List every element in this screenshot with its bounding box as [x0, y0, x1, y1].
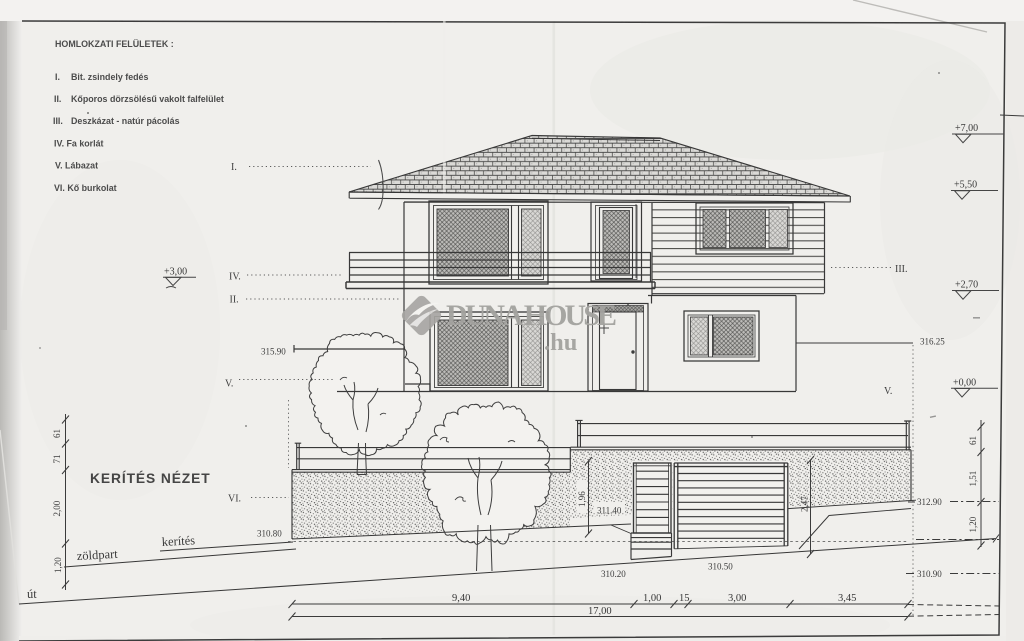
svg-text:312.90: 312.90	[917, 497, 942, 507]
svg-text:.hu: .hu	[544, 329, 577, 356]
svg-text:+3,00: +3,00	[164, 267, 187, 278]
svg-text:310.80: 310.80	[257, 529, 282, 539]
svg-text:1,51: 1,51	[968, 471, 978, 487]
svg-text:310.50: 310.50	[708, 562, 733, 572]
svg-text:V.: V.	[225, 379, 233, 390]
svg-text:DUNA HOUSE: DUNA HOUSE	[446, 299, 618, 332]
svg-text:Bit. zsindely fedés: Bit. zsindely fedés	[71, 72, 148, 82]
svg-text:2,47: 2,47	[800, 496, 810, 512]
svg-text:9,40: 9,40	[452, 593, 470, 604]
svg-text:17,00: 17,00	[588, 606, 612, 617]
svg-text:3,00: 3,00	[728, 593, 746, 604]
svg-text:I.: I.	[55, 72, 60, 82]
svg-text:+0,00: +0,00	[953, 378, 976, 389]
svg-text:+2,70: +2,70	[955, 280, 978, 291]
svg-text:III.: III.	[895, 264, 908, 275]
svg-text:1,20: 1,20	[53, 557, 63, 573]
svg-text:út: út	[27, 587, 37, 601]
svg-text:1,20: 1,20	[968, 516, 978, 532]
svg-text:2,00: 2,00	[52, 500, 62, 516]
svg-text:71: 71	[52, 455, 62, 464]
svg-text:zöldpart: zöldpart	[76, 547, 118, 563]
svg-text:Deszkázat - natúr pácolás: Deszkázat - natúr pácolás	[71, 116, 180, 126]
svg-text:311.40: 311.40	[597, 506, 622, 516]
svg-text:II.: II.	[54, 94, 61, 104]
svg-text:V.: V.	[884, 386, 892, 397]
svg-text:IV. Fa korlát: IV. Fa korlát	[54, 139, 104, 149]
svg-text:61: 61	[968, 436, 978, 445]
svg-text:I.: I.	[231, 162, 237, 173]
svg-text:VI. Kő burkolat: VI. Kő burkolat	[54, 183, 117, 193]
svg-text:316.25: 316.25	[920, 337, 945, 347]
svg-text:61: 61	[52, 429, 62, 438]
svg-text:310.90: 310.90	[917, 569, 942, 579]
svg-text:Kőporos dörzsölésű vakolt falf: Kőporos dörzsölésű vakolt falfelület	[71, 94, 224, 104]
svg-text:310.20: 310.20	[601, 569, 626, 579]
svg-text:kerítés: kerítés	[161, 533, 195, 549]
svg-text:II.: II.	[230, 295, 239, 306]
svg-text:15: 15	[679, 593, 690, 604]
svg-text:V. Lábazat: V. Lábazat	[55, 161, 98, 171]
svg-text:1,96: 1,96	[577, 491, 587, 507]
svg-text:VI.: VI.	[228, 494, 241, 505]
svg-text:III.: III.	[53, 116, 63, 126]
svg-text:IV.: IV.	[229, 272, 241, 283]
svg-text:+5,50: +5,50	[954, 180, 977, 191]
svg-text:315.90: 315.90	[261, 347, 286, 357]
svg-text:3,45: 3,45	[838, 593, 856, 604]
svg-text:KERÍTÉS NÉZET: KERÍTÉS NÉZET	[90, 470, 211, 486]
svg-text:1,00: 1,00	[643, 593, 661, 604]
svg-text:+7,00: +7,00	[955, 123, 978, 134]
svg-text:HOMLOKZATI FELÜLETEK :: HOMLOKZATI FELÜLETEK :	[55, 39, 174, 49]
